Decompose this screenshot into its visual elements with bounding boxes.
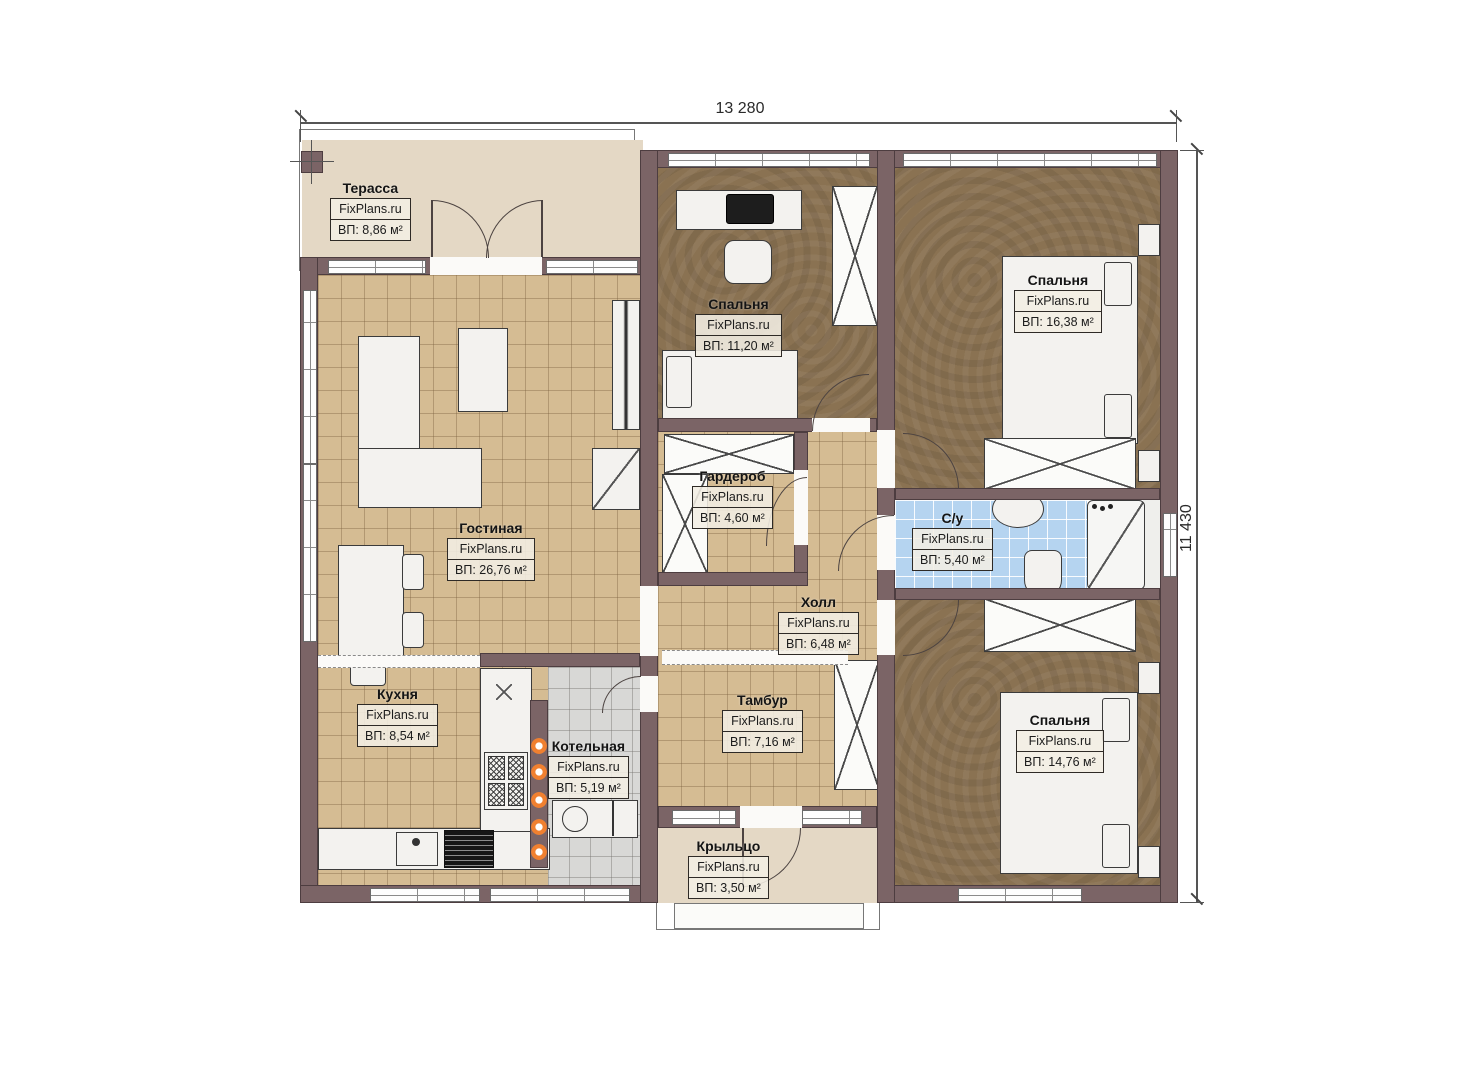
office-chair [724,240,772,284]
label-bedroom-right-top: Спальня FixPlans.ru ВП: 16,38 м² [1014,272,1102,333]
window-tambour-right [802,810,862,825]
nightstand [1138,846,1160,878]
post-axis-mark [311,140,312,184]
room-name: Холл [778,594,859,610]
burner-icon [488,783,505,807]
passage-living-kitchen [318,655,480,668]
boiler-divider [612,800,614,836]
sofa [358,448,482,508]
room-area: ВП: 7,16 м² [722,732,803,753]
label-living: Гостиная FixPlans.ru ВП: 26,76 м² [447,520,535,581]
room-name: Гостиная [447,520,535,536]
shower-head-icon [1092,504,1097,509]
wall-bathroom-top [895,488,1160,500]
label-porch: Крыльцо FixPlans.ru ВП: 3,50 м² [688,838,769,899]
room-name: Спальня [695,296,782,312]
room-name: Гардероб [692,468,773,484]
room-area: ВП: 5,19 м² [548,778,629,799]
dimension-width-label: 13 280 [660,100,820,118]
wardrobe-closet [834,660,880,790]
room-area: ВП: 26,76 м² [447,560,535,581]
wardrobe-closet [984,438,1136,490]
watermark: FixPlans.ru [447,538,535,560]
opening-terrace-doors [430,257,542,275]
watermark: FixPlans.ru [357,704,438,726]
opening-living-hall [640,586,658,656]
dimension-extension [1180,902,1204,903]
porch-step [674,903,864,929]
radiator-dot-icon [531,764,547,780]
watermark: FixPlans.ru [688,856,769,878]
wall-boiler-top [480,653,640,667]
coffee-table [458,328,508,412]
opening-tambour-boiler [640,676,658,712]
window-bottom-kitchen [370,888,480,902]
label-terrace: Терасса FixPlans.ru ВП: 8,86 м² [330,180,411,241]
room-name: Кухня [357,686,438,702]
pillow [1102,824,1130,868]
faucet-icon [412,838,420,846]
burner-icon [488,756,505,780]
watermark: FixPlans.ru [548,756,629,778]
watermark: FixPlans.ru [1014,290,1102,312]
label-hall: Холл FixPlans.ru ВП: 6,48 м² [778,594,859,655]
dimension-height-label: 11 430 [1178,478,1196,578]
opening-bedroom-right-bottom-door [877,600,895,655]
label-wardrobe: Гардероб FixPlans.ru ВП: 4,60 м² [692,468,773,529]
window-top-b [903,153,1157,167]
room-name: С/у [912,510,993,526]
wardrobe-closet [832,186,878,326]
nightstand [1138,450,1160,482]
dimension-extension [1180,150,1204,151]
room-name: Спальня [1016,712,1104,728]
window-left-upper [303,290,317,464]
dimension-extension [1176,110,1177,142]
floor-plan-canvas: 13 280 11 430 [0,0,1473,1080]
wall-bathroom-bottom [895,588,1160,600]
stove [484,752,528,810]
label-bedroom-right-bottom: Спальня FixPlans.ru ВП: 14,76 м² [1016,712,1104,773]
pillow [666,356,692,408]
watermark: FixPlans.ru [722,710,803,732]
label-bedroom-top: Спальня FixPlans.ru ВП: 11,20 м² [695,296,782,357]
wall-center-left [640,150,658,903]
burner-icon [508,756,525,780]
dining-table [338,545,404,665]
corner-unit [592,448,640,510]
radiator-dot-icon [531,738,547,754]
radiator-dot-icon [531,819,547,835]
room-area: ВП: 5,40 м² [912,550,993,571]
dimension-extension [300,110,301,142]
window-right [1163,513,1177,577]
window-left-lower [303,464,317,642]
bathroom-niche [1143,500,1160,588]
room-area: ВП: 14,76 м² [1016,752,1104,773]
room-area: ВП: 8,54 м² [357,726,438,747]
watermark: FixPlans.ru [1016,730,1104,752]
window-bottom-boiler [490,888,630,902]
dimension-line-right [1196,150,1198,903]
watermark: FixPlans.ru [778,612,859,634]
nightstand [1138,662,1160,694]
window-living-top-right [546,260,638,274]
wardrobe-closet [984,598,1136,652]
room-name: Терасса [330,180,411,196]
shower [1087,500,1145,590]
window-bottom-bedroom [958,888,1082,902]
vent-symbol-icon [496,684,512,700]
label-boiler: Котельная FixPlans.ru ВП: 5,19 м² [548,738,629,799]
tv-stand [612,300,640,430]
label-kitchen: Кухня FixPlans.ru ВП: 8,54 м² [357,686,438,747]
room-name: Тамбур [722,692,803,708]
room-name: Спальня [1014,272,1102,288]
watermark: FixPlans.ru [695,314,782,336]
room-area: ВП: 4,60 м² [692,508,773,529]
opening-entrance-door [740,806,802,828]
kitchen-sink [396,832,438,866]
door-leaf [541,200,543,257]
room-area: ВП: 3,50 м² [688,878,769,899]
dimension-tick-icon [295,110,307,122]
watermark: FixPlans.ru [912,528,993,550]
radiator-dot-icon [531,844,547,860]
opening-bedroom-right-top-door [877,430,895,488]
room-area: ВП: 16,38 м² [1014,312,1102,333]
watermark: FixPlans.ru [330,198,411,220]
door-leaf [431,200,433,257]
window-top-a [668,153,870,167]
dimension-line-top [300,122,1177,124]
pillow [1104,394,1132,438]
room-area: ВП: 11,20 м² [695,336,782,357]
chair [402,612,424,648]
chair [402,554,424,590]
watermark: FixPlans.ru [692,486,773,508]
room-area: ВП: 6,48 м² [778,634,859,655]
room-name: Котельная [548,738,629,754]
wall-wardrobe-bottom [658,572,808,586]
boiler-drum-icon [562,806,588,832]
room-area: ВП: 8,86 м² [330,220,411,241]
nightstand [1138,224,1160,256]
pillow [1102,698,1130,742]
pillow [1104,262,1132,306]
window-living-top-left [328,260,426,274]
computer-icon [726,194,774,224]
room-name: Крыльцо [688,838,769,854]
window-tambour-left [672,810,736,825]
wall-kitchen-boiler [530,700,548,868]
label-tambour: Тамбур FixPlans.ru ВП: 7,16 м² [722,692,803,753]
burner-icon [508,783,525,807]
radiator-dot-icon [531,792,547,808]
fridge [444,830,494,868]
label-bathroom: С/у FixPlans.ru ВП: 5,40 м² [912,510,993,571]
